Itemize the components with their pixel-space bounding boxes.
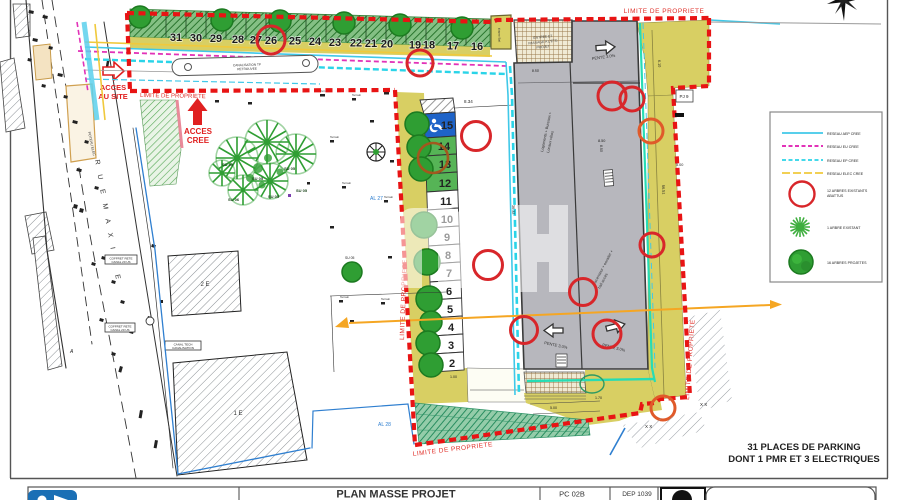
svg-text:Terrain: Terrain <box>342 181 352 185</box>
svg-text:A: A <box>69 349 74 355</box>
svg-text:CANAL 20 US: CANAL 20 US <box>111 260 130 264</box>
svg-text:Entree Bat: Entree Bat <box>497 28 501 42</box>
svg-text:SU 05: SU 05 <box>345 256 355 260</box>
svg-text:29: 29 <box>210 33 222 45</box>
svg-text:CANAL 20 US: CANAL 20 US <box>110 328 129 332</box>
svg-text:1 E: 1 E <box>233 411 242 417</box>
svg-text:5: 5 <box>447 304 453 316</box>
svg-text:1.00: 1.00 <box>450 375 457 379</box>
svg-text:ACCES: ACCES <box>100 83 126 92</box>
svg-text:16: 16 <box>471 41 483 53</box>
svg-text:21: 21 <box>365 38 377 50</box>
svg-text:30: 30 <box>190 33 202 45</box>
svg-text:2: 2 <box>449 358 455 370</box>
svg-text:CREE: CREE <box>187 136 210 145</box>
svg-text:SU 05: SU 05 <box>296 188 308 193</box>
svg-text:AL 27: AL 27 <box>370 196 383 202</box>
svg-text:17: 17 <box>447 40 459 52</box>
svg-text:Terrain: Terrain <box>330 135 340 139</box>
svg-text:16 ARBRES PROJETES: 16 ARBRES PROJETES <box>827 261 867 265</box>
svg-text:8.50: 8.50 <box>598 139 605 143</box>
svg-text:8.50: 8.50 <box>532 69 539 73</box>
svg-text:26: 26 <box>265 35 277 47</box>
svg-text:23: 23 <box>329 37 341 49</box>
svg-text:31 PLACES DE PARKING: 31 PLACES DE PARKING <box>747 442 860 453</box>
svg-text:PC 02B: PC 02B <box>559 490 585 499</box>
svg-text:8.34: 8.34 <box>464 99 473 104</box>
svg-text:31: 31 <box>170 32 182 44</box>
svg-text:22: 22 <box>350 38 362 50</box>
svg-text:8.50: 8.50 <box>599 145 603 152</box>
svg-text:Terrain: Terrain <box>384 195 394 199</box>
svg-text:RESEAU EU CREE: RESEAU EU CREE <box>827 145 859 149</box>
svg-text:SU 05: SU 05 <box>252 176 264 181</box>
svg-text:5.00: 5.00 <box>676 163 683 167</box>
svg-text:CANALISATION: CANALISATION <box>172 346 194 350</box>
svg-text:2 E: 2 E <box>200 282 209 288</box>
svg-text:1 ARBRE EXISTANT: 1 ARBRE EXISTANT <box>827 226 861 230</box>
svg-text:28: 28 <box>232 34 244 46</box>
svg-text:LIMITE DE PROPRIETE: LIMITE DE PROPRIETE <box>624 8 705 15</box>
svg-text:4: 4 <box>448 322 455 334</box>
svg-text:1.70: 1.70 <box>595 396 602 400</box>
svg-text:X X: X X <box>700 402 707 407</box>
svg-text:RESEAU EP CREE: RESEAU EP CREE <box>827 159 859 163</box>
svg-text:DONT 1 PMR ET 3 ELECTRIQUES: DONT 1 PMR ET 3 ELECTRIQUES <box>728 454 880 465</box>
svg-text:25: 25 <box>289 36 301 48</box>
svg-text:Terrain: Terrain <box>381 297 391 301</box>
svg-text:11: 11 <box>440 196 452 208</box>
svg-text:6.10: 6.10 <box>657 60 661 68</box>
svg-text:ACCES: ACCES <box>184 127 213 136</box>
svg-text:ABATTUS: ABATTUS <box>827 194 844 198</box>
svg-text:PJ 9: PJ 9 <box>679 94 689 99</box>
svg-text:SU 05: SU 05 <box>284 166 296 171</box>
svg-text:SU 05: SU 05 <box>222 162 234 167</box>
svg-text:Terrain: Terrain <box>352 93 362 97</box>
svg-text:5.00: 5.00 <box>550 406 557 410</box>
svg-text:RESEAU ELEC CREE: RESEAU ELEC CREE <box>827 172 864 176</box>
svg-text:AL 28: AL 28 <box>378 422 391 428</box>
svg-text:12 ARBRES EXISTANTS: 12 ARBRES EXISTANTS <box>827 189 868 193</box>
svg-text:LIMITE DE PROPRIETE: LIMITE DE PROPRIETE <box>140 93 206 100</box>
svg-text:36.32: 36.32 <box>511 205 515 215</box>
svg-text:RETROUVEE: RETROUVEE <box>237 67 257 72</box>
svg-text:DEP 1039: DEP 1039 <box>622 491 652 498</box>
svg-text:3: 3 <box>448 340 454 352</box>
svg-text:15: 15 <box>441 120 453 132</box>
svg-text:X X: X X <box>645 424 652 429</box>
svg-text:20: 20 <box>381 38 393 50</box>
svg-text:PLAN MASSE PROJET: PLAN MASSE PROJET <box>336 489 455 500</box>
svg-text:56.51: 56.51 <box>661 185 665 195</box>
svg-text:12: 12 <box>439 178 451 190</box>
svg-text:SU 06: SU 06 <box>228 197 240 202</box>
svg-text:SU 05: SU 05 <box>268 194 280 199</box>
svg-text:RESEAU AEP CREE: RESEAU AEP CREE <box>827 132 861 136</box>
svg-text:24: 24 <box>309 36 322 48</box>
